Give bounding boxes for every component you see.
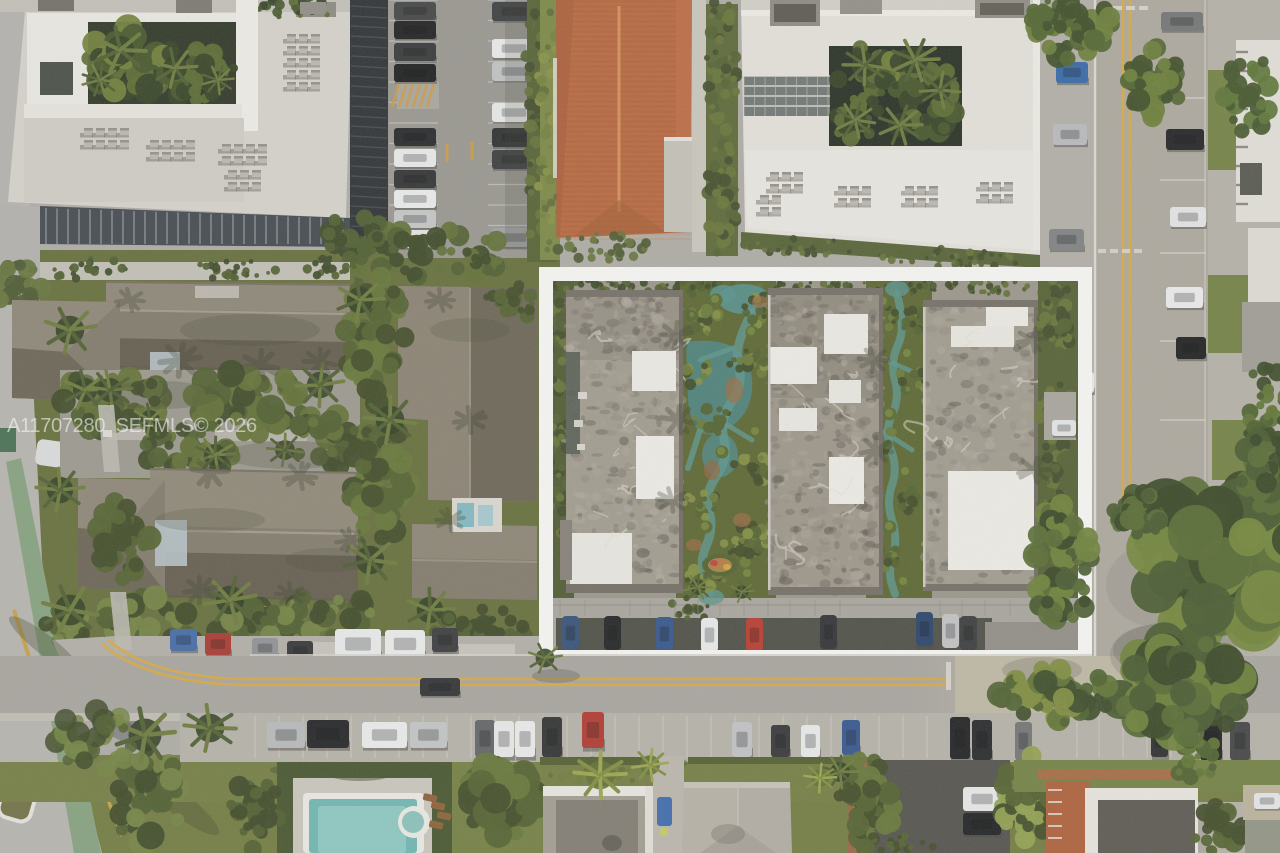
svg-text:A11707280 SEFMLS© 2026: A11707280 SEFMLS© 2026 [7, 415, 257, 437]
